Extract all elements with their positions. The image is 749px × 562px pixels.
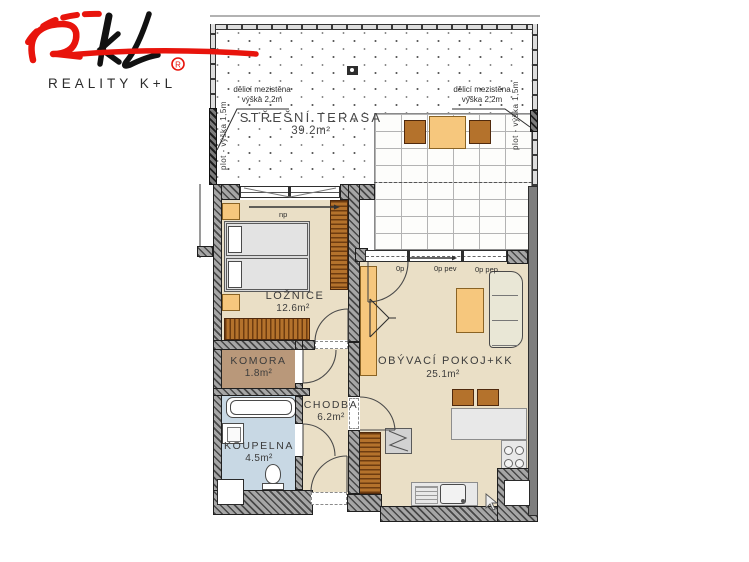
entrance-threshold [311, 492, 347, 505]
svg-text:R: R [175, 61, 181, 70]
terrace-name: STŘEŠNÍ TERASA [231, 111, 391, 124]
terrace-fence-right [532, 24, 538, 186]
partition-note-right-l1: dělicí mezistěna [453, 85, 510, 94]
glazing-mullion-2 [461, 250, 464, 262]
partition-note-right: dělicí mezistěna výška 2,2m [438, 85, 526, 105]
terrace-overhang-line [374, 182, 532, 183]
wall-outer-right [528, 186, 538, 516]
wall-storage-bottom [213, 388, 310, 396]
floorplan-page: { "brand": { "name": "REALITY K+L", "reg… [0, 0, 749, 562]
hallway-area: 6.2m² [299, 413, 363, 423]
stove-burner-1 [504, 446, 513, 455]
terrace-partition-right [530, 110, 538, 132]
partition-note-left: dělicí mezistěna výška 2,2m [218, 85, 306, 105]
nightstand-bottom [222, 294, 240, 311]
sofa-seat-lines [492, 271, 518, 348]
bed-pillow-top [228, 226, 242, 253]
toilet-tank [262, 483, 284, 490]
hallway-name: CHODBA [299, 400, 363, 411]
living-name: OBÝVACÍ POKOJ+KK [378, 356, 508, 367]
bed-pillow-bottom [228, 261, 242, 288]
bar-stool-left [452, 389, 474, 406]
bedroom-wardrobe-bottom [224, 318, 310, 340]
stove-burner-4 [515, 459, 524, 468]
fridge [385, 428, 412, 454]
bedroom-name: LOŽNICE [245, 291, 345, 302]
partition-note-left-l1: dělicí mezistěna [233, 85, 290, 94]
wall-hallway-right-top [348, 342, 360, 397]
toilet-bowl [265, 464, 281, 484]
utility-shaft-left [217, 479, 244, 505]
opening-label-right: 0p pep [475, 266, 498, 274]
bedroom-wardrobe-right [330, 200, 348, 290]
bathtub-inner [230, 400, 292, 415]
stove-burner-3 [504, 459, 513, 468]
storage-name: KOMORA [222, 356, 295, 367]
glazing-mullion-1 [407, 250, 410, 262]
terrace-area: 39.2m² [231, 126, 391, 138]
partition-note-left-l2: výška 2,2m [242, 95, 282, 104]
wall-bedroom-right [348, 184, 360, 342]
bedroom-window-label: np [279, 211, 287, 219]
bathroom-area: 4.5m² [222, 454, 296, 464]
kitchen-peninsula [451, 408, 527, 440]
bar-stool-right [477, 389, 499, 406]
nightstand-top [222, 203, 240, 220]
wall-glazing-post-right [507, 250, 528, 264]
terrace-chair-right [469, 120, 491, 144]
living-glazed-wall [365, 250, 507, 262]
bedroom-area: 12.6m² [243, 304, 343, 314]
wall-hallway-right-bottom [348, 430, 360, 494]
dish-drainer [415, 486, 438, 504]
terrace-drain [347, 66, 358, 75]
wall-entry-bottom [347, 494, 382, 512]
utility-shaft-right [504, 480, 530, 506]
stove-burner-2 [515, 446, 524, 455]
wall-stub-left [197, 246, 213, 257]
bedroom-window-mullion [288, 186, 291, 198]
coffee-table [456, 288, 484, 333]
opening-label-left: 0p [396, 265, 404, 273]
storage-area: 1.8m² [222, 369, 295, 379]
terrace-partition-left [209, 108, 217, 185]
partition-note-right-l2: výška 2,2m [462, 95, 502, 104]
terrace-table [429, 116, 466, 149]
living-area: 25.1m² [378, 370, 508, 380]
kitchen-faucet [461, 499, 465, 503]
brand-name: REALITY K+L [48, 76, 176, 91]
wall-bathroom-right-bottom [295, 456, 303, 490]
opening-label-mid: 0p pev [434, 265, 457, 273]
terrace-chair-left [404, 120, 426, 144]
wall-storage-right-top [295, 340, 303, 350]
bathroom-name: KOUPELNA [216, 441, 302, 452]
bedroom-door-threshold [315, 341, 348, 349]
tv-cabinet [360, 266, 377, 376]
